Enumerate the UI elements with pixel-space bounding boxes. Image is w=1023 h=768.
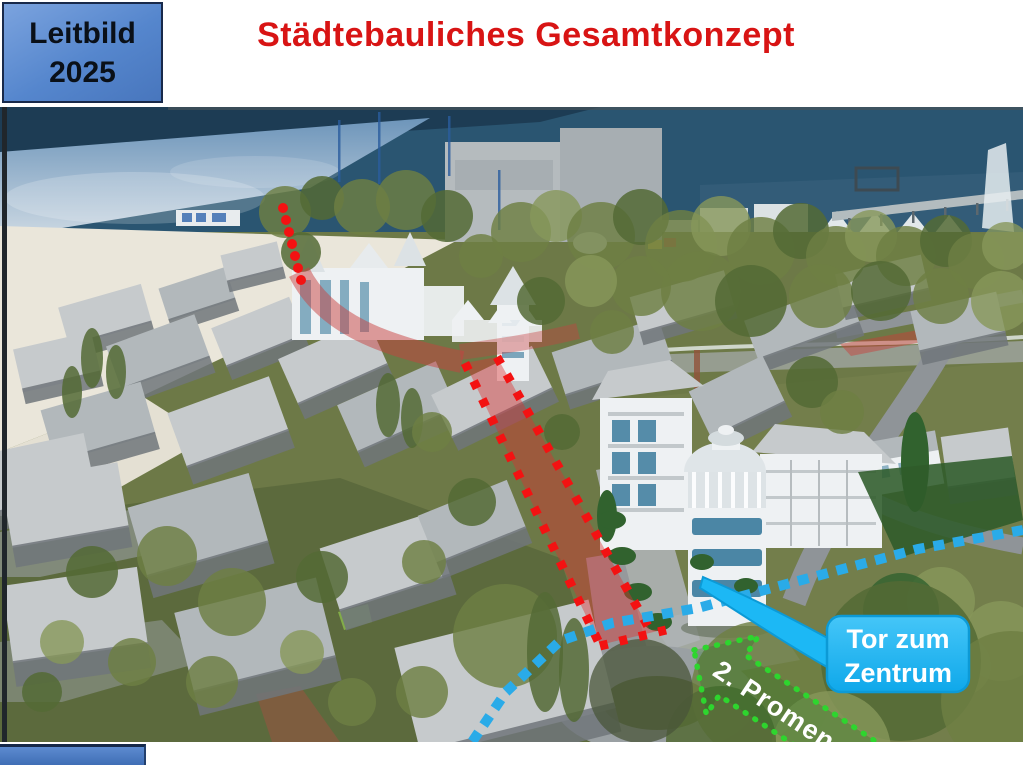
leitbild-2025-badge: Leitbild 2025 bbox=[2, 2, 163, 103]
callout-line1: Tor zum bbox=[847, 624, 950, 654]
presentation-slide: Leitbild 2025 Städtebauliches Gesamtkonz… bbox=[0, 0, 1023, 768]
badge-line1: Leitbild bbox=[29, 14, 136, 53]
footer-accent-bar bbox=[0, 744, 146, 765]
badge-line2: 2025 bbox=[49, 53, 116, 92]
callout-line2: Zentrum bbox=[844, 658, 952, 688]
slide-title: Städtebauliches Gesamtkonzept bbox=[170, 16, 882, 55]
image-left-border bbox=[2, 107, 7, 742]
concept-3d-view: 2. Promenade Tor zum Zentrum bbox=[0, 107, 1023, 742]
